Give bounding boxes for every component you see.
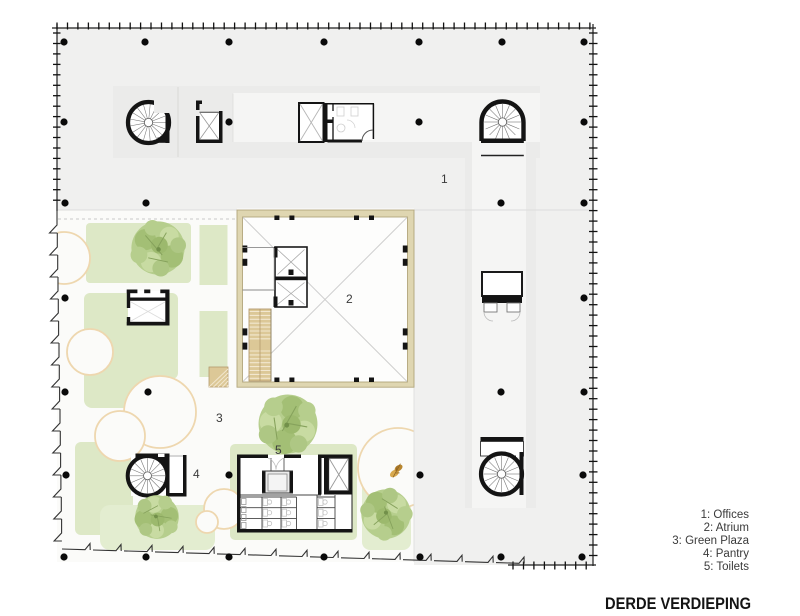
svg-text:2: 2 (346, 292, 353, 306)
svg-text:1: Offices: 1: Offices (701, 509, 750, 521)
svg-text:5: Toilets: 5: Toilets (704, 561, 749, 573)
svg-text:4: Pantry: 4: Pantry (703, 548, 749, 560)
svg-text:5: 5 (275, 443, 282, 457)
svg-text:1: 1 (441, 172, 448, 186)
svg-text:DERDE VERDIEPING: DERDE VERDIEPING (605, 595, 751, 613)
svg-text:3: 3 (216, 411, 223, 425)
svg-text:3: Green Plaza: 3: Green Plaza (672, 535, 749, 547)
svg-text:4: 4 (193, 467, 200, 481)
svg-text:2: Atrium: 2: Atrium (704, 522, 749, 534)
